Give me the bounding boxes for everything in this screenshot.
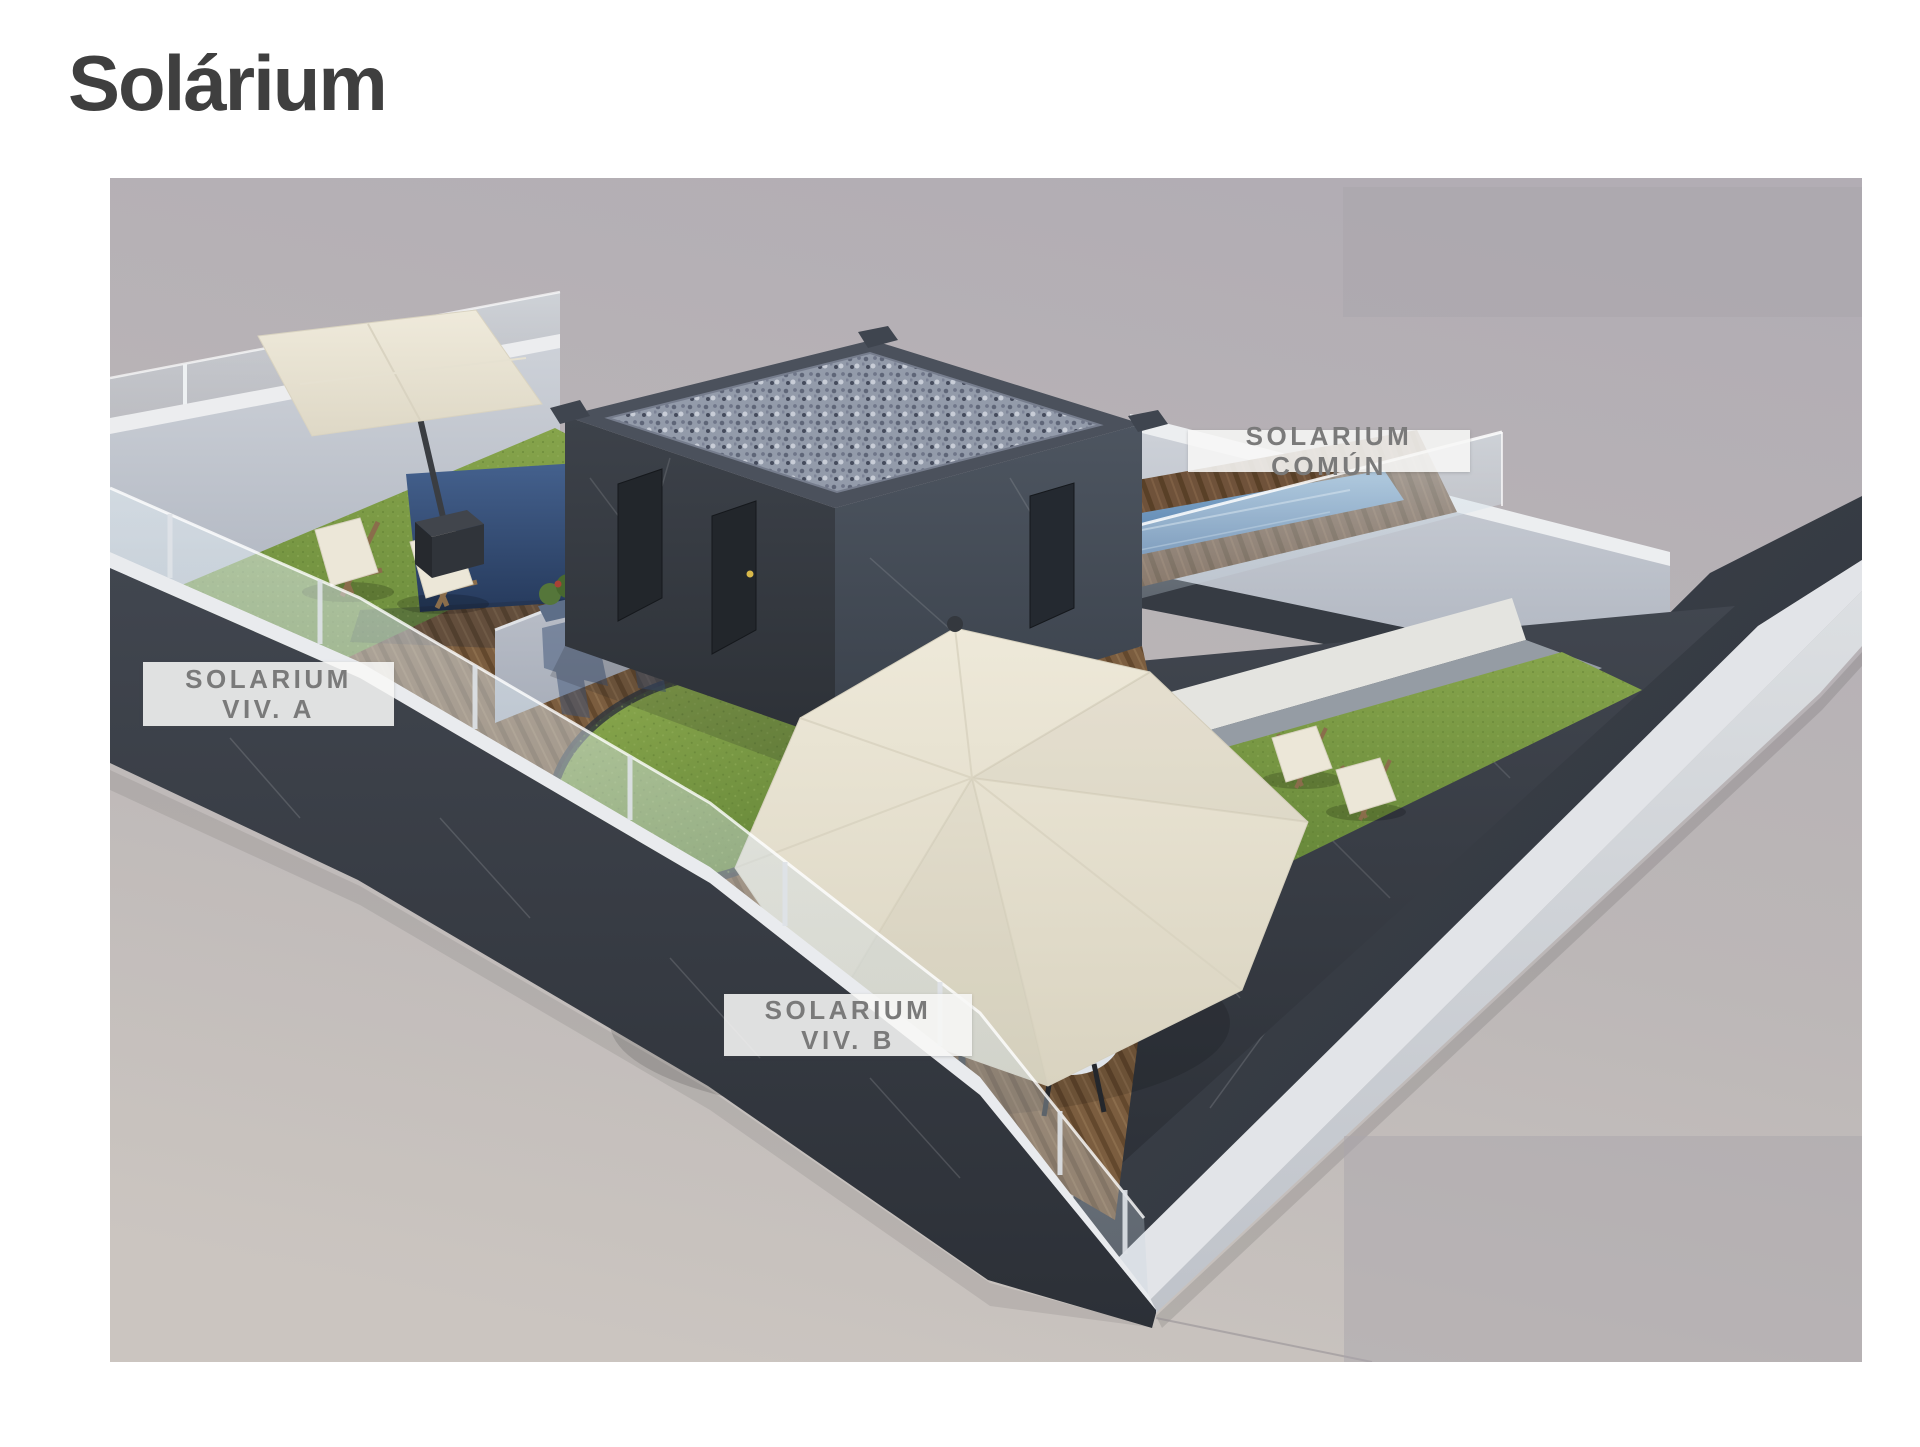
solarium-3d-render: SOLARIUM COMÚN SOLARIUM VIV. A SOLARIUM … xyxy=(110,178,1862,1362)
page-title: Solárium xyxy=(68,38,386,129)
door-knob xyxy=(747,571,754,578)
label-solarium-comun: SOLARIUM COMÚN xyxy=(1188,430,1470,472)
overlay-rectangle-top-right xyxy=(1343,187,1862,317)
door xyxy=(712,501,756,654)
label-text-line1: SOLARIUM xyxy=(765,995,932,1025)
label-text-line2: VIV. A xyxy=(222,694,315,724)
label-text: SOLARIUM COMÚN xyxy=(1188,421,1470,481)
overlay-rectangle-bottom-right xyxy=(1344,1136,1862,1362)
door xyxy=(1030,483,1074,628)
label-solarium-viv-b: SOLARIUM VIV. B xyxy=(724,994,972,1056)
umbrella-finial xyxy=(947,616,963,632)
render-scene xyxy=(110,178,1862,1362)
label-text-line1: SOLARIUM xyxy=(185,664,352,694)
label-solarium-viv-a: SOLARIUM VIV. A xyxy=(143,662,394,726)
slide-page: Solárium xyxy=(0,0,1920,1447)
door xyxy=(618,469,662,621)
label-text-line2: VIV. B xyxy=(801,1025,895,1055)
